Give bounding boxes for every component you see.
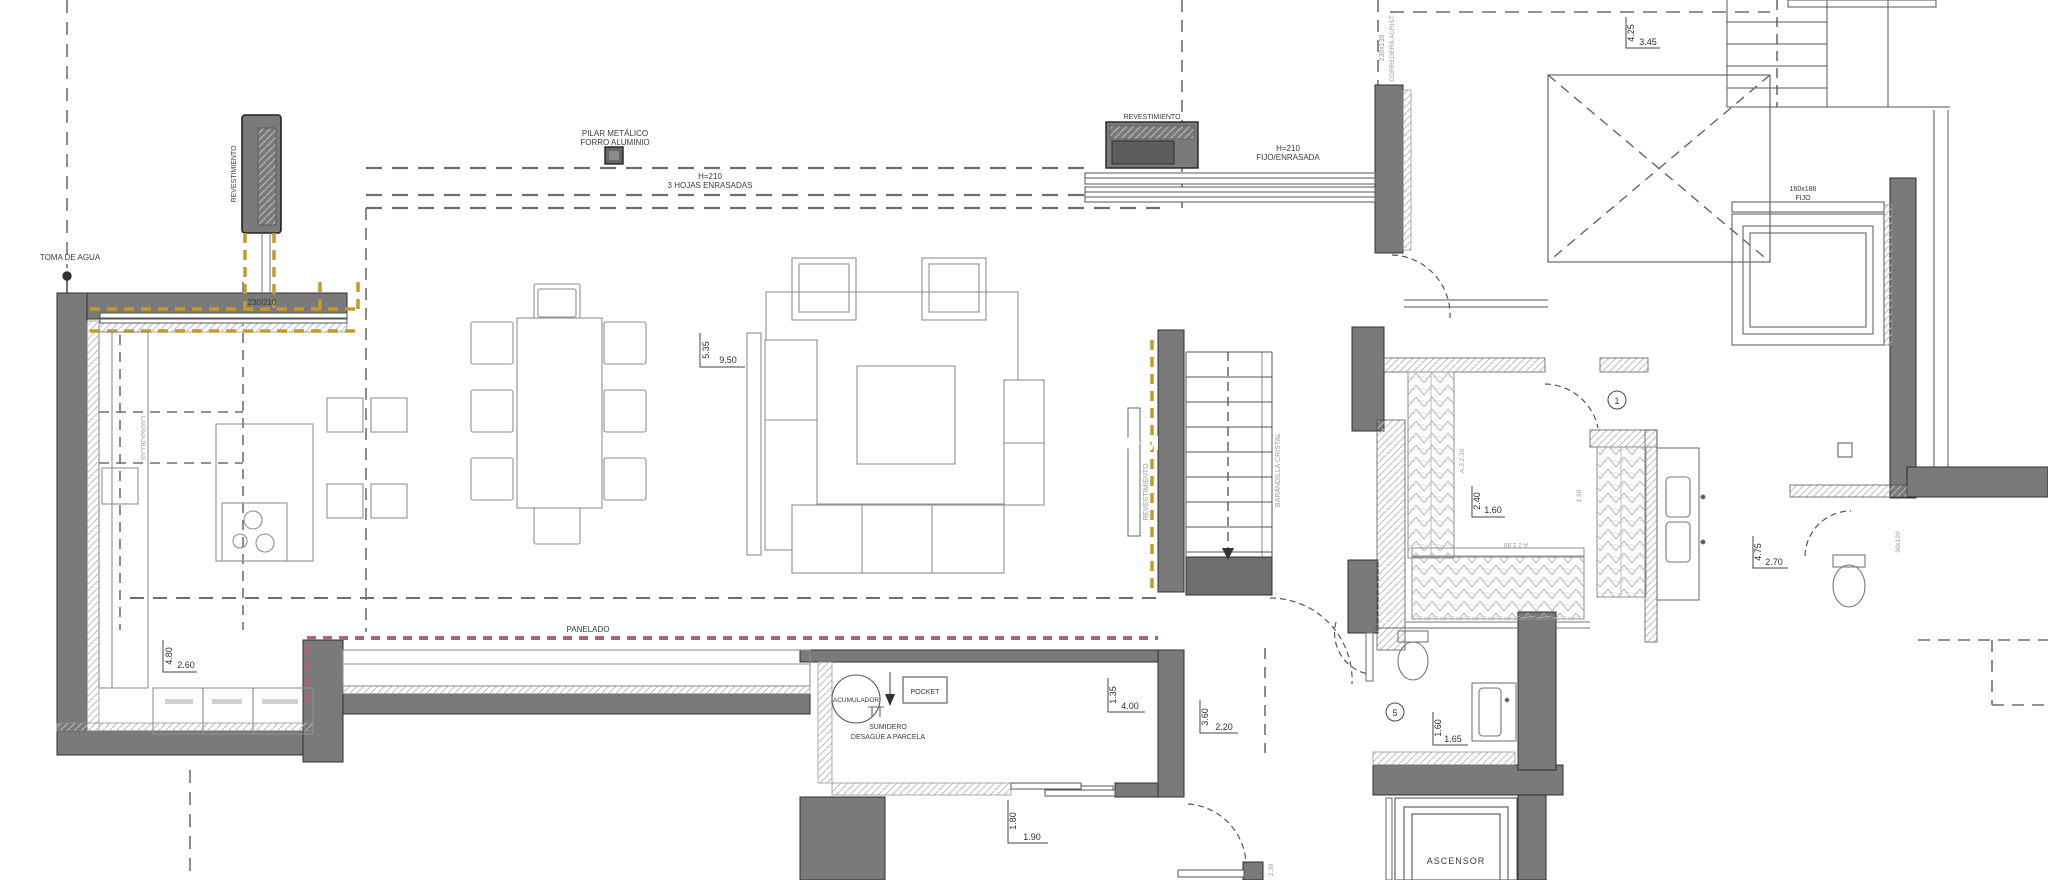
coffee-table bbox=[857, 366, 955, 464]
dim-4-80: 4.80 bbox=[164, 647, 174, 665]
label-ref-230v: 2.30 bbox=[1268, 863, 1275, 876]
dim-1-60: 1.60 bbox=[1484, 505, 1502, 515]
main-staircase bbox=[1186, 352, 1272, 560]
dim-2-40: 2.40 bbox=[1472, 492, 1482, 510]
dining-set bbox=[471, 284, 646, 544]
label-ventanal-1: H=210 bbox=[698, 172, 722, 181]
label-sumidero-1: SUMIDERO bbox=[869, 724, 907, 731]
reference-dashed-lines bbox=[67, 0, 2048, 880]
dim-1-80: 1.80 bbox=[1008, 812, 1018, 830]
window-bench-box bbox=[1106, 122, 1198, 168]
floor-plan-page: TOMA DE AGUA REVESTIMIENTO PILAR METÁLIC… bbox=[0, 0, 2048, 880]
label-acumulador: ACUMULADOR bbox=[833, 697, 880, 704]
label-revestimiento-escalera: REVESTIMIENTO bbox=[1143, 463, 1150, 521]
label-corredera-1: 230x130 bbox=[1379, 34, 1386, 61]
kitchen bbox=[99, 332, 810, 734]
label-fijo-2: FIJO/ENRASADA bbox=[1256, 153, 1320, 162]
closet-dashed-x bbox=[1548, 75, 1770, 262]
living-room-furniture bbox=[747, 258, 1044, 573]
label-fijo-1: H=210 bbox=[1276, 144, 1300, 153]
dim-2-70: 2.70 bbox=[1765, 557, 1783, 567]
door-number-5: 5 bbox=[1392, 708, 1397, 718]
label-toma-de-agua: TOMA DE AGUA bbox=[40, 253, 101, 262]
toilet-bowl bbox=[1398, 642, 1428, 680]
label-lavavajillas: LAVAVAJILLAS bbox=[139, 416, 146, 461]
upper-stairs bbox=[1727, 0, 1950, 107]
label-pocket: POCKET bbox=[911, 689, 941, 696]
dim-3-60: 3.60 bbox=[1200, 708, 1210, 726]
label-revestimiento-chimenea: REVESTIMIENTO bbox=[231, 145, 238, 203]
label-pilar-1: PILAR METÁLICO bbox=[582, 129, 648, 138]
label-ventanal-2: 3 HOJAS ENRASADAS bbox=[668, 181, 753, 190]
label-ref-a3: A-3 2.30 bbox=[1459, 448, 1466, 473]
label-ref-130: 1.30 bbox=[1576, 489, 1583, 502]
dim-2-20: 2.20 bbox=[1215, 722, 1233, 732]
label-fijo-ventana-1: 160x186 bbox=[1790, 186, 1817, 193]
dim-1-65: 1.65 bbox=[1444, 734, 1462, 744]
drain-arrow-icon bbox=[885, 694, 895, 706]
label-barandilla-cristal: BARANDILLA CRISTAL bbox=[1275, 433, 1282, 507]
sink bbox=[1666, 477, 1690, 517]
door-leaf bbox=[1178, 870, 1244, 877]
dim-1-90: 1.90 bbox=[1023, 832, 1041, 842]
label-fijo-ventana-2: FIJO bbox=[1795, 195, 1811, 202]
dining-table bbox=[517, 318, 602, 508]
label-dim-230-210: 230/210 bbox=[248, 298, 277, 307]
dim-1-60b: 1.60 bbox=[1433, 719, 1443, 737]
stool bbox=[371, 398, 407, 432]
dim-3-45: 3.45 bbox=[1639, 37, 1657, 47]
vanity-counter bbox=[1657, 448, 1699, 600]
kitchen-island bbox=[216, 424, 313, 561]
toilet-bowl bbox=[1833, 565, 1865, 607]
floor-plan-drawing: TOMA DE AGUA REVESTIMIENTO PILAR METÁLIC… bbox=[0, 0, 2048, 880]
dim-4-75: 4.75 bbox=[1753, 543, 1763, 561]
label-ascensor: ASCENSOR bbox=[1427, 856, 1486, 866]
label-ref-a2: A-2 1.80 bbox=[1503, 541, 1528, 548]
label-ref-90x120: 90x120 bbox=[1895, 531, 1902, 553]
watermark: COM bbox=[1109, 433, 1162, 455]
wardrobe-bottom bbox=[1412, 557, 1584, 619]
elevator bbox=[1395, 798, 1517, 880]
label-panelado: PANELADO bbox=[567, 625, 610, 634]
dim-4-00: 4.00 bbox=[1121, 701, 1139, 711]
corridor-door bbox=[1178, 870, 1244, 877]
chimney-column bbox=[242, 115, 281, 308]
door-leaf bbox=[1366, 633, 1373, 681]
sofa-modules bbox=[792, 505, 1004, 573]
label-corredera-2: CORREDERA ACRIST. bbox=[1389, 14, 1396, 82]
washbasin bbox=[1479, 688, 1501, 736]
stool bbox=[327, 398, 363, 432]
dim-4-25: 4.25 bbox=[1626, 24, 1636, 42]
bathroom-vanity-room bbox=[1657, 448, 1865, 607]
dim-5-35: 5.35 bbox=[701, 341, 711, 359]
sink bbox=[1666, 522, 1690, 562]
cooktop bbox=[222, 503, 287, 561]
dim-1-35: 1.35 bbox=[1108, 686, 1118, 704]
stool bbox=[327, 484, 363, 518]
label-revestimiento-banco: REVESTIMIENTO bbox=[1123, 114, 1181, 121]
label-sumidero-2: DESAGÜE A PARCELA bbox=[851, 733, 926, 741]
dim-2-60: 2.60 bbox=[177, 660, 195, 670]
metal-pillar bbox=[605, 147, 623, 164]
dressing-room bbox=[1405, 372, 1646, 628]
dim-9-50: 9.50 bbox=[719, 355, 737, 365]
stool bbox=[371, 484, 407, 518]
label-pilar-2: FORRO ALUMINIO bbox=[580, 138, 649, 147]
bench bbox=[343, 650, 810, 686]
tv-board bbox=[747, 333, 761, 555]
kitchen-counter bbox=[99, 332, 148, 688]
water-intake-icon bbox=[63, 272, 71, 293]
door-number-1: 1 bbox=[1614, 396, 1619, 406]
